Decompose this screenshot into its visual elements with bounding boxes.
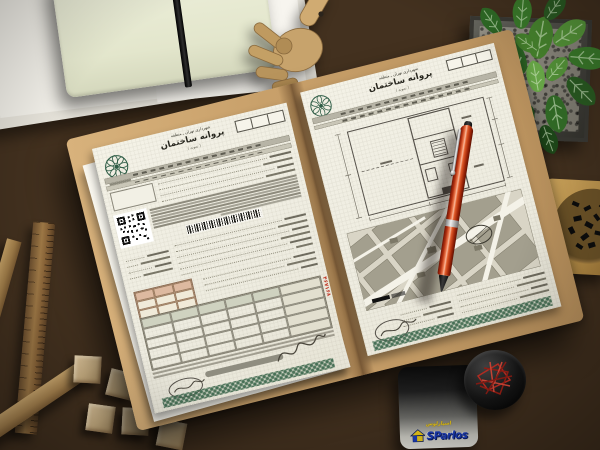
qr-code-icon	[115, 210, 151, 246]
brand-logo: اسپارلوس SParlos	[400, 420, 479, 444]
ruler-arm	[0, 238, 22, 359]
pen-tip	[436, 274, 449, 292]
wooden-cube	[73, 355, 101, 383]
sparlos-house-icon	[410, 428, 425, 443]
brand-name: SParlos	[426, 429, 468, 442]
wooden-cube	[85, 403, 115, 433]
desk-scene: شهرداری تهران ـ منطقه پروانه ساختمان ( ن…	[0, 0, 600, 450]
ruler-arm	[0, 364, 85, 447]
reference-number-boxes	[446, 49, 493, 71]
reference-number-boxes	[234, 110, 285, 133]
paperclip-holder	[464, 350, 526, 410]
notebook-elastic-band	[167, 0, 193, 88]
form-rows	[125, 248, 173, 282]
red-paperclips-icon	[464, 350, 526, 410]
